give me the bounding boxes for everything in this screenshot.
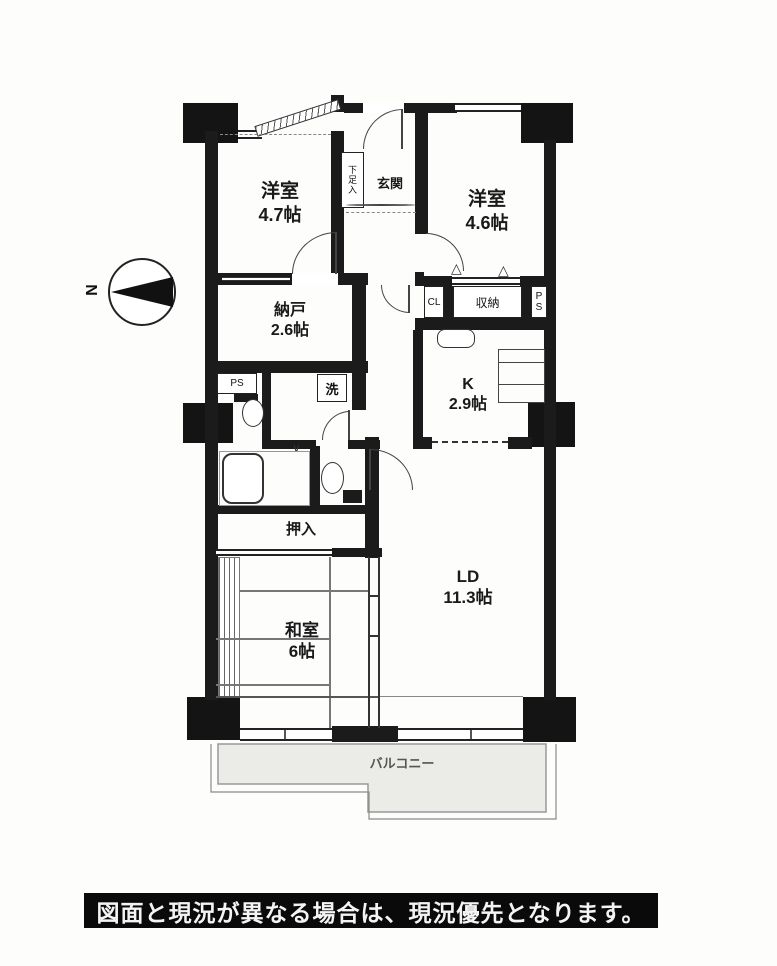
kitchen-opening-dashed bbox=[432, 441, 508, 443]
sliding-door-handle bbox=[370, 595, 378, 597]
sliding-door-line bbox=[378, 557, 380, 728]
washroom-door-leaf bbox=[348, 410, 350, 440]
tatami-line bbox=[329, 557, 331, 728]
pipe-shaft-label: PS bbox=[230, 378, 243, 389]
compass-north-arrow-icon bbox=[111, 277, 173, 307]
wall bbox=[415, 103, 428, 234]
window-tick bbox=[470, 730, 472, 739]
wall bbox=[343, 490, 362, 503]
wall bbox=[415, 272, 424, 286]
folding-door-track bbox=[452, 277, 520, 285]
living-door-leaf bbox=[369, 449, 371, 490]
window-tick bbox=[284, 730, 286, 739]
wall bbox=[415, 318, 556, 330]
storage-label: 収納 bbox=[475, 294, 499, 311]
window bbox=[398, 728, 523, 741]
disclaimer-bar: 図面と現況が異なる場合は、現況優先となります。 bbox=[84, 893, 658, 928]
wall bbox=[205, 131, 218, 700]
wall bbox=[413, 330, 423, 449]
tatami-line bbox=[240, 590, 370, 592]
shoe-cabinet: 下足入 bbox=[341, 152, 364, 208]
pipe-shaft-box: PS bbox=[217, 373, 257, 394]
kitchen-counter-line bbox=[498, 362, 545, 363]
wall bbox=[205, 505, 368, 514]
room-label-oshiire: 押入 bbox=[286, 521, 316, 540]
room-label-japanese-room: 和室6帖 bbox=[285, 620, 319, 663]
compass-north-label: N bbox=[81, 284, 99, 296]
wall bbox=[424, 276, 452, 286]
wall bbox=[352, 276, 366, 410]
wall bbox=[443, 286, 453, 318]
hall-door-arc bbox=[381, 285, 410, 313]
room-label-storage-room: 納戸2.6帖 bbox=[271, 301, 309, 341]
room-label-living-dining: LD11.3帖 bbox=[443, 566, 492, 609]
sliding-door-line bbox=[368, 557, 370, 728]
room-label-bedroom2: 洋室4.6帖 bbox=[465, 188, 508, 234]
entrance-door-leaf bbox=[401, 110, 403, 149]
window-sill-line bbox=[220, 134, 331, 135]
room-label-balcony: バルコニー bbox=[370, 756, 435, 772]
laundry-label: 洗 bbox=[325, 379, 338, 398]
wall bbox=[332, 726, 398, 742]
floor-plan-page: N 下足入 bbox=[0, 0, 777, 966]
kitchen-counter bbox=[498, 349, 545, 403]
door-opening bbox=[292, 273, 338, 285]
wall bbox=[508, 437, 532, 449]
wall bbox=[404, 103, 457, 113]
disclaimer-text: 図面と現況が異なる場合は、現況優先となります。 bbox=[96, 894, 645, 928]
balcony-outline bbox=[205, 741, 560, 823]
entrance-floor-line bbox=[346, 212, 416, 213]
bedroom1-door-leaf bbox=[335, 233, 337, 274]
wall bbox=[262, 440, 316, 449]
toilet-bowl bbox=[321, 462, 344, 494]
wall bbox=[332, 548, 382, 557]
closet-cl-box: CL bbox=[424, 286, 444, 318]
entrance-step-line bbox=[346, 204, 416, 206]
pillar bbox=[187, 697, 240, 740]
wall bbox=[205, 361, 368, 373]
kitchen-sink bbox=[437, 329, 475, 348]
entrance-door-arc bbox=[363, 109, 403, 149]
bedroom1-door-arc bbox=[292, 232, 337, 274]
wall bbox=[262, 371, 271, 440]
window bbox=[240, 728, 332, 741]
window bbox=[455, 103, 521, 112]
room-edge-line bbox=[216, 696, 380, 698]
tatami-line bbox=[216, 684, 330, 686]
wall bbox=[520, 276, 544, 286]
pipe-shaft-label: PS bbox=[536, 291, 543, 313]
tatami-edge-strip bbox=[218, 557, 240, 697]
laundry-pan: 洗 bbox=[317, 374, 347, 402]
living-door-arc bbox=[370, 449, 413, 490]
room-label-kitchen: K2.9帖 bbox=[449, 375, 487, 415]
sliding-door-handle bbox=[370, 635, 378, 637]
pillar bbox=[521, 103, 573, 143]
shoe-cabinet-label: 下足入 bbox=[346, 165, 359, 195]
closet-door-line bbox=[216, 549, 332, 556]
wall bbox=[413, 437, 432, 449]
folding-door-mark: △ bbox=[451, 260, 462, 277]
washroom-door-arc bbox=[322, 411, 350, 440]
toilet-bowl bbox=[242, 399, 264, 427]
folding-door-mark: △ bbox=[498, 262, 509, 279]
wall bbox=[544, 140, 556, 700]
closet-cl-label: CL bbox=[428, 297, 441, 308]
pillar bbox=[523, 697, 576, 742]
bathtub bbox=[222, 453, 264, 504]
angled-window bbox=[254, 99, 341, 137]
wall bbox=[522, 286, 531, 318]
wall bbox=[310, 446, 320, 508]
pipe-shaft-box: PS bbox=[531, 286, 547, 318]
room-label-entrance: 玄関 bbox=[377, 176, 403, 192]
hall-door-leaf bbox=[408, 285, 410, 313]
storage-box: 収納 bbox=[453, 286, 522, 318]
room-label-bedroom1: 洋室4.7帖 bbox=[258, 180, 301, 226]
kitchen-counter-line bbox=[498, 384, 545, 385]
closet-door-line bbox=[222, 277, 290, 281]
room-edge-line bbox=[380, 696, 523, 697]
